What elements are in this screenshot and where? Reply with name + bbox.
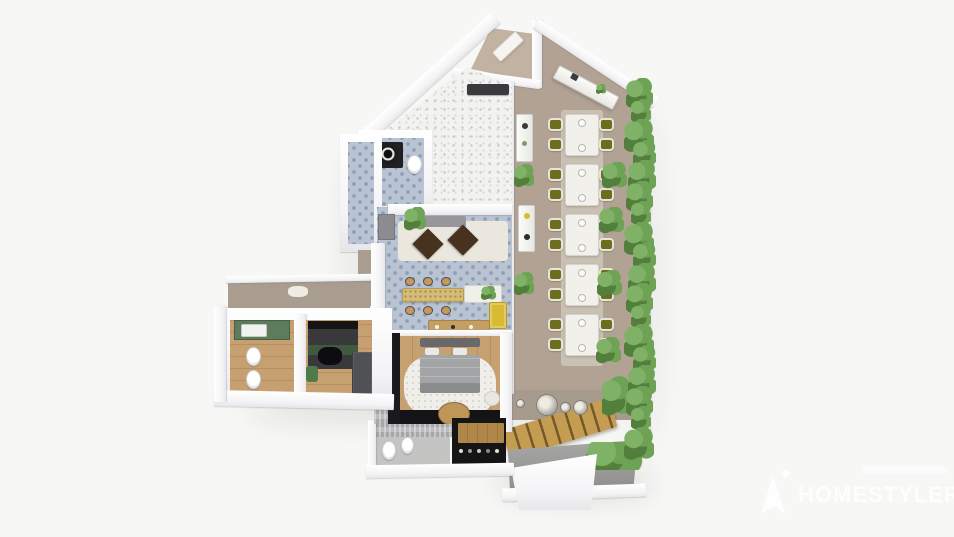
- place-setting: [578, 319, 586, 327]
- yellow-cabinet: [489, 302, 507, 329]
- mid-left-wall: [371, 243, 385, 343]
- lounge-bar-floor: [377, 207, 512, 337]
- dark-pantry: [452, 418, 506, 468]
- counter-item: [524, 234, 530, 240]
- hall-floor: [505, 20, 650, 395]
- duvet: [420, 355, 480, 385]
- reception-desk: [552, 65, 619, 110]
- lounge-rug: [398, 221, 508, 261]
- pantry-item: [486, 449, 490, 453]
- counter-item: [524, 213, 530, 219]
- dining-chair: [599, 238, 614, 251]
- terrace-bush: [582, 442, 644, 470]
- shadow: [498, 468, 650, 498]
- place-setting: [578, 294, 586, 302]
- wing-divider-wall: [294, 314, 306, 404]
- roof-edge: [226, 274, 372, 284]
- wing-left-wall: [214, 306, 226, 402]
- terrace-bottom-wall: [502, 483, 646, 501]
- service-counter: [518, 205, 535, 252]
- roof-object: [288, 286, 308, 297]
- shadow: [250, 396, 590, 422]
- dining-chair: [599, 168, 614, 181]
- shower-tile: [374, 378, 388, 424]
- dining-chair: [548, 218, 563, 231]
- wall-plant: [514, 272, 534, 296]
- master-bedroom-foot-cabinet: [400, 410, 502, 432]
- bidet: [246, 370, 261, 389]
- hedge-clump: [624, 324, 654, 358]
- pouf: [484, 391, 500, 406]
- counter-item: [522, 141, 527, 146]
- place-setting: [578, 219, 586, 227]
- desk-plant: [596, 84, 606, 94]
- bar-counter-extension: [464, 285, 502, 303]
- roof-wall-apex: [343, 13, 500, 158]
- bed: [420, 338, 480, 394]
- dining-table: [565, 264, 599, 306]
- pantry-item: [468, 449, 472, 453]
- dining-chair: [548, 318, 563, 331]
- green-stool: [306, 366, 318, 382]
- wardrobe: [352, 352, 372, 404]
- flat-roof-left-wing: [228, 280, 370, 310]
- dining-table: [565, 114, 599, 156]
- hedge-clump: [628, 365, 656, 397]
- dark-cushion: [318, 347, 342, 365]
- central-bottom-wall: [366, 463, 514, 479]
- terrace-drop-wall: [512, 390, 634, 420]
- dining-set: [548, 214, 616, 260]
- console-item: [469, 325, 473, 329]
- potted-tree: [602, 162, 627, 189]
- central-section: [0, 0, 954, 537]
- second-headboard: [308, 321, 358, 329]
- pantry-item: [477, 449, 481, 453]
- master-bathroom-wall-tile: [374, 424, 452, 437]
- bedroom-rug: [404, 356, 496, 416]
- side-table: [378, 214, 395, 240]
- wall-disc: [536, 394, 558, 416]
- headboard: [420, 338, 480, 347]
- dining-chair: [548, 238, 563, 251]
- place-setting: [578, 269, 586, 277]
- dining-chair: [599, 218, 614, 231]
- dining-chair: [599, 338, 614, 351]
- wc-mat: [371, 142, 403, 168]
- vestibule-sofa: [492, 31, 524, 62]
- wing-walls: [216, 308, 392, 404]
- cash-register: [570, 73, 579, 82]
- toilet: [246, 347, 261, 366]
- dining-table: [565, 164, 599, 206]
- bar-counter: [402, 288, 464, 302]
- console-item: [451, 325, 455, 329]
- potted-tree: [596, 337, 621, 364]
- bar-stool: [423, 277, 433, 286]
- terrace-floor: [505, 438, 642, 494]
- bar-stool: [441, 306, 451, 315]
- wc-walls: [358, 130, 432, 214]
- bar-stool: [405, 277, 415, 286]
- wc-floor: [366, 138, 424, 206]
- place-setting: [578, 169, 586, 177]
- corridor-floor: [348, 142, 374, 244]
- bar-stool: [405, 306, 415, 315]
- dining-set: [548, 164, 616, 210]
- place-setting: [578, 144, 586, 152]
- shadow: [622, 110, 662, 440]
- master-bedroom-right-wall: [500, 333, 512, 432]
- dining-chair: [599, 138, 614, 151]
- green-vanity: [234, 320, 290, 340]
- vestibule-bottom-wall: [452, 68, 540, 89]
- second-bedroom-floor: [306, 320, 372, 396]
- terrazzo-room-floor: [350, 60, 515, 215]
- hedge-clump: [626, 78, 653, 109]
- vestibule-right-wall: [532, 20, 542, 88]
- bar-stool: [423, 306, 433, 315]
- roof-wall-right: [533, 19, 659, 108]
- left-bathroom-floor: [230, 320, 294, 392]
- place-setting: [578, 344, 586, 352]
- flat-roof-strip: [358, 250, 398, 306]
- watermark-brand: HOMESTYLER: [798, 482, 954, 508]
- bar-stool: [441, 277, 451, 286]
- wall-disc: [516, 399, 525, 408]
- dining-chair: [548, 288, 563, 301]
- terrazzo-bench: [467, 84, 509, 95]
- hedge-clump: [628, 263, 656, 295]
- hedge-clump: [631, 99, 651, 123]
- hedge-clump: [633, 140, 656, 167]
- sink: [241, 324, 267, 337]
- entry-vestibule-floor: [465, 25, 540, 85]
- potted-plant: [602, 376, 630, 418]
- dining-chair: [548, 138, 563, 151]
- hedge-clump: [624, 222, 654, 256]
- entry-apron: [505, 452, 603, 512]
- foot-throw: [420, 383, 480, 393]
- wooden-staircase: [502, 398, 618, 459]
- dining-chair: [599, 188, 614, 201]
- wc-toilet: [407, 155, 422, 174]
- bar-bedroom-wall: [388, 330, 512, 336]
- green-blanket: [308, 345, 358, 355]
- bidet: [401, 437, 414, 454]
- lounge-plant: [404, 207, 426, 231]
- lounge-bench: [418, 216, 466, 227]
- hedge-clump: [628, 160, 656, 192]
- bathroom-left-wall: [368, 420, 376, 474]
- dining-chair: [548, 118, 563, 131]
- pantry-item: [495, 449, 499, 453]
- hedge-clump: [631, 304, 651, 328]
- dining-chair: [599, 268, 614, 281]
- hall-right-wall: [636, 94, 650, 452]
- dining-chair: [599, 318, 614, 331]
- dining-runner-carpet: [561, 110, 603, 366]
- dining-chair: [548, 168, 563, 181]
- dining-chair: [548, 188, 563, 201]
- hedge-clump: [624, 119, 654, 153]
- dining-set: [548, 114, 616, 160]
- bar-plant: [481, 286, 496, 300]
- corridor-walls: [340, 134, 382, 252]
- watermark-tagline: [862, 466, 948, 474]
- left-wing: [0, 0, 954, 537]
- lounge-top-wall: [388, 204, 512, 215]
- toilet: [382, 441, 396, 460]
- hedge-clump: [626, 181, 653, 212]
- pillow: [453, 348, 467, 355]
- dining-table: [565, 214, 599, 256]
- second-bed: [308, 321, 358, 369]
- shadow: [344, 150, 370, 330]
- dining-set: [548, 264, 616, 310]
- coffee-machine: [522, 123, 528, 129]
- coffee-table: [412, 228, 443, 259]
- hedge-clump: [624, 427, 654, 461]
- potted-tree: [597, 270, 622, 297]
- dining-chair: [599, 118, 614, 131]
- dining-chair: [599, 288, 614, 301]
- hedge-clump: [631, 201, 651, 225]
- wing-bottom-wall: [214, 390, 394, 410]
- service-counter: [516, 114, 533, 162]
- place-setting: [578, 244, 586, 252]
- main-hall: [0, 0, 954, 537]
- wall-disc: [573, 400, 588, 415]
- hall-left-wall: [504, 82, 514, 394]
- master-bedroom-floor: [400, 336, 502, 412]
- watermark: HOMESTYLER: [748, 460, 954, 530]
- hedge-clump: [633, 345, 656, 372]
- wood-console: [428, 320, 490, 333]
- floorplan-render: HOMESTYLER: [0, 0, 954, 537]
- hedge-clump: [633, 242, 656, 269]
- sparkle-icon: [781, 469, 791, 479]
- round-table: [438, 402, 470, 426]
- wall-disc: [560, 402, 571, 413]
- master-bathroom-floor: [376, 437, 450, 469]
- dining-chair: [548, 268, 563, 281]
- master-bedroom-wardrobe: [386, 333, 400, 432]
- pantry-table: [458, 423, 504, 443]
- hedge-clump: [626, 386, 653, 417]
- dining-set: [548, 314, 616, 360]
- homestyler-logo: [756, 476, 790, 514]
- pantry-item: [459, 449, 463, 453]
- wall-plant: [514, 164, 534, 188]
- console-item: [435, 325, 439, 329]
- place-setting: [578, 119, 586, 127]
- hedge-clump: [631, 406, 651, 430]
- dining-chair: [548, 338, 563, 351]
- wc-basin: [378, 144, 398, 164]
- potted-tree: [599, 207, 624, 234]
- coffee-table: [447, 224, 478, 255]
- place-setting: [578, 194, 586, 202]
- dining-table: [565, 314, 599, 356]
- pillow: [425, 348, 439, 355]
- hedge-clump: [626, 283, 653, 314]
